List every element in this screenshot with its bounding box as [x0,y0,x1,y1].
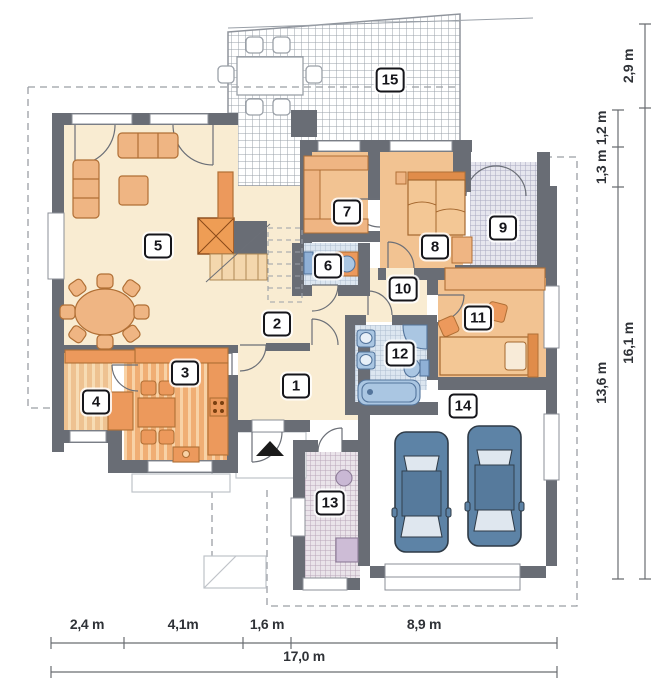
terrace-chair [246,37,263,53]
window [318,141,360,151]
nightstand [396,172,406,184]
small-terrace-floor [470,162,537,265]
room-label-7: 7 [333,200,361,225]
terrace-chair [218,66,234,83]
window [544,286,559,348]
bed-headboard [408,172,465,180]
room-label-14: 14 [449,394,478,419]
pantry-cabinet [108,392,133,430]
window [544,414,559,480]
room-label-5: 5 [144,234,172,259]
desk [445,268,545,290]
tv-cabinet [218,172,233,218]
dim-right-inner-3: 13,6 m [593,362,609,404]
kitchen-terrace-step [132,474,230,492]
porch-step [204,556,266,588]
boiler [336,470,352,486]
window [303,578,347,590]
room-label-15: 15 [376,68,405,93]
kitchen-chair [141,430,156,444]
kitchen-chair [141,381,156,395]
terrace-chair [273,37,290,53]
terrace-chair [246,99,263,115]
coffee-table [119,176,148,205]
room-label-12: 12 [386,342,415,367]
dim-right-outer-2: 16,1 m [620,322,636,364]
room-label-13: 13 [316,491,345,516]
window [48,213,64,279]
pillow [505,342,526,370]
dim-bottom-total: 17,0 m [283,648,325,664]
room-label-10: 10 [389,277,418,302]
room-label-11: 11 [464,306,492,331]
terrace-table [237,57,303,95]
window [70,431,106,442]
dim-bottom-3: 1,6 m [250,616,284,632]
window [148,461,212,472]
dim-right-inner-2: 1,3 m [593,150,609,184]
kitchen-chair [159,430,174,444]
room-label-2: 2 [263,312,291,337]
window [150,114,208,124]
kitchen-table [138,398,175,427]
furnace [336,538,358,562]
toilet-tank [420,360,429,376]
chimney-block [234,221,267,254]
room-label-3: 3 [171,361,199,386]
dim-right-outer-1: 2,9 m [620,49,636,83]
room-label-4: 4 [82,390,110,415]
toilet-tank [304,252,313,274]
car [465,426,524,546]
room-label-8: 8 [421,235,449,260]
stove [210,398,227,416]
bed-headboard [528,334,538,377]
dim-right-inner-1: 1,2 m [593,111,609,145]
car [392,432,451,552]
sofa-small [73,160,99,218]
terrace-chair [273,99,290,115]
pantry-counter [65,350,135,363]
terrace-chair [306,66,322,83]
window [291,498,305,536]
room-label-9: 9 [489,216,517,241]
window [72,114,132,124]
dim-bottom-1: 2,4 m [70,616,104,632]
entrance-door [252,420,284,432]
dim-bottom-2: 4,1m [168,616,199,632]
room-label-1: 1 [282,374,310,399]
bedroom-cabinet [452,237,472,263]
room-label-6: 6 [314,254,342,279]
floor-plan-svg [0,0,669,700]
floor-plan-canvas: 1 2 3 4 5 6 7 8 9 10 11 12 13 14 15 2,4 … [0,0,669,700]
dim-bottom-4: 8,9 m [407,616,441,632]
dining-table [75,289,135,335]
sofa-large [118,133,178,158]
window [390,141,452,151]
terrace-pillar [291,110,317,137]
